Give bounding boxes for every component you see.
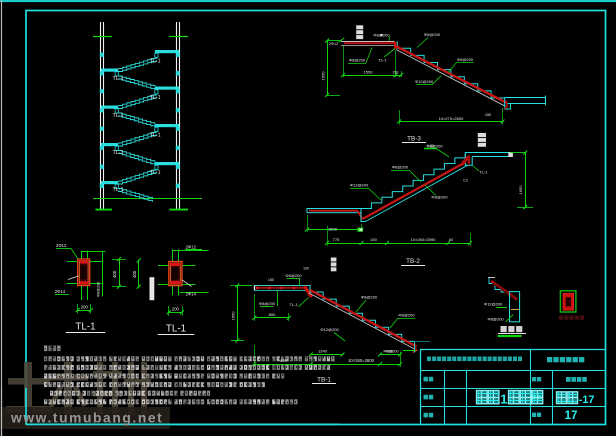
- svg-text:1500: 1500: [328, 227, 338, 232]
- svg-text:TL-1: TL-1: [166, 324, 186, 335]
- svg-text:2Φ12: 2Φ12: [329, 42, 338, 46]
- svg-text:Φ8@200: Φ8@200: [457, 57, 474, 62]
- svg-text:60: 60: [449, 238, 453, 242]
- svg-text:Φ8@200: Φ8@200: [361, 295, 378, 300]
- svg-text:-17: -17: [579, 394, 595, 406]
- svg-text:1:2: 1:2: [463, 179, 468, 183]
- svg-text:Φ8@200: Φ8@200: [488, 317, 505, 322]
- svg-text:150: 150: [393, 71, 399, 75]
- svg-text:2Φ14: 2Φ14: [55, 289, 66, 294]
- svg-text:TL-1: TL-1: [150, 95, 161, 101]
- svg-text:Φ12@200: Φ12@200: [415, 79, 434, 84]
- svg-text:1240: 1240: [318, 349, 328, 354]
- svg-text:10×270=2600: 10×270=2600: [439, 116, 464, 121]
- svg-text:Φ8@200: Φ8@200: [431, 195, 448, 200]
- svg-text:1650: 1650: [321, 71, 326, 81]
- svg-text:Φ12@200: Φ12@200: [484, 302, 503, 307]
- svg-text:17: 17: [565, 410, 578, 422]
- svg-text:1650: 1650: [518, 185, 523, 195]
- svg-text:150: 150: [485, 113, 491, 117]
- svg-text:1650: 1650: [230, 311, 235, 321]
- svg-text:TL-1: TL-1: [113, 113, 124, 119]
- svg-text:2Φ14: 2Φ14: [186, 292, 197, 297]
- svg-text:200: 200: [81, 304, 89, 309]
- svg-text:Φ12@200: Φ12@200: [320, 327, 339, 332]
- svg-text:200: 200: [172, 307, 180, 312]
- svg-text:Φ8@200: Φ8@200: [426, 144, 443, 149]
- svg-text:400: 400: [132, 270, 137, 278]
- svg-text:100: 100: [303, 267, 309, 271]
- svg-text:TL-1: TL-1: [113, 150, 124, 156]
- svg-text:2Φ12: 2Φ12: [186, 244, 197, 249]
- svg-text:Φ8@200: Φ8@200: [97, 282, 101, 297]
- svg-text:Φ8@200: Φ8@200: [392, 165, 409, 170]
- svg-text:TL-1: TL-1: [150, 132, 161, 138]
- svg-text:10×260=2600: 10×260=2600: [348, 358, 375, 363]
- svg-text:10×260=2590: 10×260=2590: [411, 237, 436, 242]
- svg-text:TL-1: TL-1: [150, 170, 161, 176]
- svg-text:TB-2: TB-2: [406, 258, 420, 265]
- svg-text:150: 150: [268, 278, 274, 282]
- svg-text:TL-1: TL-1: [75, 322, 95, 333]
- svg-text:2Φ12: 2Φ12: [56, 243, 67, 248]
- svg-text:400: 400: [112, 270, 117, 278]
- svg-text:775: 775: [333, 237, 340, 242]
- svg-text:Φ8@200: Φ8@200: [373, 33, 390, 38]
- svg-text:TL-1: TL-1: [479, 170, 488, 175]
- svg-text:Φ8@200: Φ8@200: [349, 58, 366, 63]
- svg-text:TB-3: TB-3: [407, 136, 421, 143]
- svg-text:Φ8@200: Φ8@200: [424, 32, 441, 37]
- svg-text:Φ8@200: Φ8@200: [398, 313, 415, 318]
- svg-text:Φ8@200: Φ8@200: [259, 301, 276, 306]
- svg-text:TL-1: TL-1: [150, 58, 161, 64]
- svg-text:TL-1: TL-1: [378, 58, 387, 63]
- svg-text:150: 150: [370, 237, 377, 242]
- svg-text:TL-1: TL-1: [289, 302, 298, 307]
- svg-text:TB-1: TB-1: [317, 377, 331, 384]
- svg-text:Φ12@200: Φ12@200: [350, 183, 369, 188]
- svg-text:Φ8@200: Φ8@200: [383, 350, 398, 354]
- svg-text:850: 850: [269, 312, 276, 317]
- svg-text:www.tumubang.net: www.tumubang.net: [10, 411, 163, 426]
- svg-text:1: 1: [500, 392, 507, 407]
- svg-text:TL-1: TL-1: [113, 76, 124, 82]
- svg-text:1550: 1550: [364, 69, 374, 74]
- svg-text:TL-1: TL-1: [113, 187, 124, 193]
- svg-text:Φ8@200: Φ8@200: [285, 273, 302, 278]
